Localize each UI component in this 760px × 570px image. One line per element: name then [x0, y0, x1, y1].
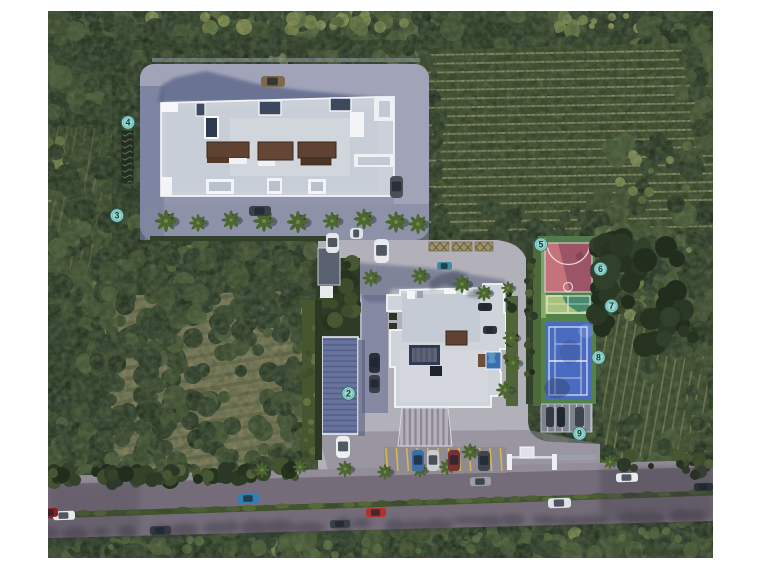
svg-text:6: 6 — [598, 264, 603, 274]
svg-text:5: 5 — [539, 240, 544, 250]
svg-text:2: 2 — [346, 389, 351, 399]
svg-text:9: 9 — [577, 429, 582, 439]
svg-text:8: 8 — [596, 353, 601, 363]
svg-text:7: 7 — [609, 301, 614, 311]
svg-text:4: 4 — [126, 118, 131, 128]
svg-text:3: 3 — [115, 211, 120, 221]
